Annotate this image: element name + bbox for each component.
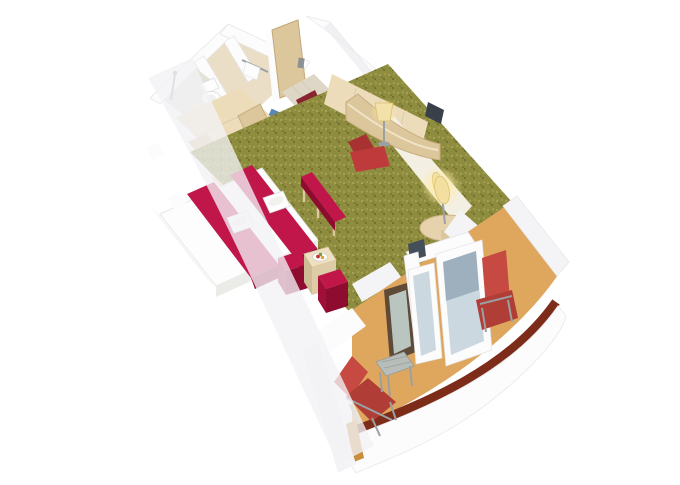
render-canvas: 3D cutaway render of a cruise-ship balco…: [0, 0, 680, 485]
fruit-orange: [321, 256, 325, 260]
desk-lamp-shade: [375, 103, 393, 121]
sliding-door-unit: [404, 232, 492, 366]
wall-fitting-1: [146, 142, 164, 160]
desk-lamp-base: [378, 142, 390, 147]
fruit-green: [319, 253, 322, 256]
cabin-3d-render: 3D cutaway render of a cruise-ship balco…: [0, 0, 680, 485]
